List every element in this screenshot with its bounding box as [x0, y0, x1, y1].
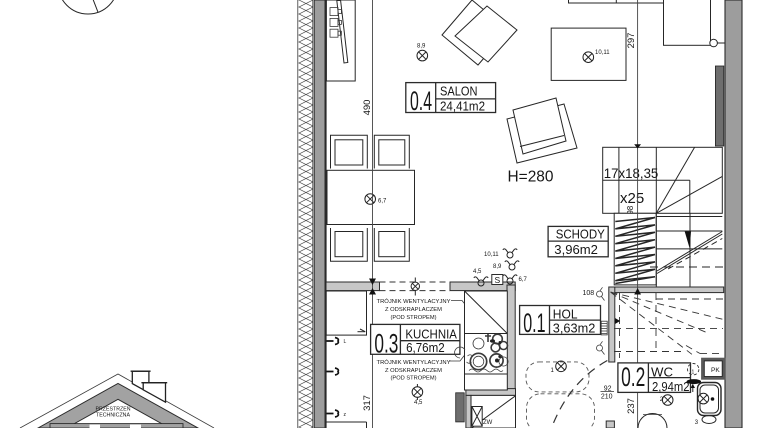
svg-text:ZW: ZW — [483, 420, 493, 426]
svg-text:2,94m2: 2,94m2 — [652, 379, 690, 394]
svg-text:3,63m2: 3,63m2 — [553, 321, 596, 336]
svg-text:317: 317 — [362, 395, 373, 411]
svg-text:WC: WC — [651, 365, 673, 380]
svg-text:(POD STROPEM): (POD STROPEM) — [391, 315, 437, 321]
svg-text:H=280: H=280 — [508, 168, 554, 185]
svg-text:6,7: 6,7 — [519, 277, 528, 283]
svg-text:4,5: 4,5 — [414, 400, 423, 406]
svg-text:8,9: 8,9 — [493, 264, 502, 270]
svg-text:Z ODSKRAPLACZEM: Z ODSKRAPLACZEM — [385, 307, 442, 313]
svg-text:L: L — [344, 339, 347, 345]
svg-text:8,9: 8,9 — [417, 44, 426, 50]
svg-text:0.1: 0.1 — [523, 308, 545, 338]
svg-text:108: 108 — [583, 290, 595, 297]
svg-text:210: 210 — [601, 394, 613, 401]
svg-text:S: S — [495, 275, 501, 285]
svg-text:TRÓJNIK WENTYLACYJNY: TRÓJNIK WENTYLACYJNY — [377, 298, 452, 305]
svg-text:24,41m2: 24,41m2 — [440, 98, 485, 113]
svg-text:HOL: HOL — [553, 306, 578, 321]
svg-text:297: 297 — [626, 33, 637, 49]
svg-text:0.2: 0.2 — [621, 362, 645, 392]
svg-text:0.4: 0.4 — [410, 86, 432, 116]
svg-text:3,96m2: 3,96m2 — [554, 242, 598, 257]
svg-text:17x18,35: 17x18,35 — [604, 165, 659, 181]
svg-text:Z ODSKRAPLACZEM: Z ODSKRAPLACZEM — [385, 368, 442, 374]
svg-text:PRZESTRZEŃ: PRZESTRZEŃ — [96, 405, 131, 412]
svg-text:x25: x25 — [620, 190, 644, 207]
svg-text:6,7: 6,7 — [378, 199, 387, 205]
svg-text:490: 490 — [362, 100, 373, 116]
svg-text:237: 237 — [626, 398, 637, 414]
svg-text:SCHODY: SCHODY — [556, 227, 606, 241]
svg-text:PK: PK — [711, 367, 720, 374]
svg-text:SALON: SALON — [440, 83, 478, 98]
svg-text:4,5: 4,5 — [473, 269, 482, 275]
svg-text:1: 1 — [692, 370, 695, 376]
svg-text:10,11: 10,11 — [484, 252, 499, 258]
svg-text:6,76m2: 6,76m2 — [406, 340, 445, 355]
svg-text:(POD STROPEM): (POD STROPEM) — [391, 376, 437, 382]
svg-text:10,11: 10,11 — [595, 50, 610, 56]
svg-text:0.3: 0.3 — [374, 328, 398, 358]
svg-text:TRÓJNIK WENTYLACYJNY: TRÓJNIK WENTYLACYJNY — [377, 359, 452, 366]
svg-text:TECHNICZNA: TECHNICZNA — [96, 413, 131, 419]
